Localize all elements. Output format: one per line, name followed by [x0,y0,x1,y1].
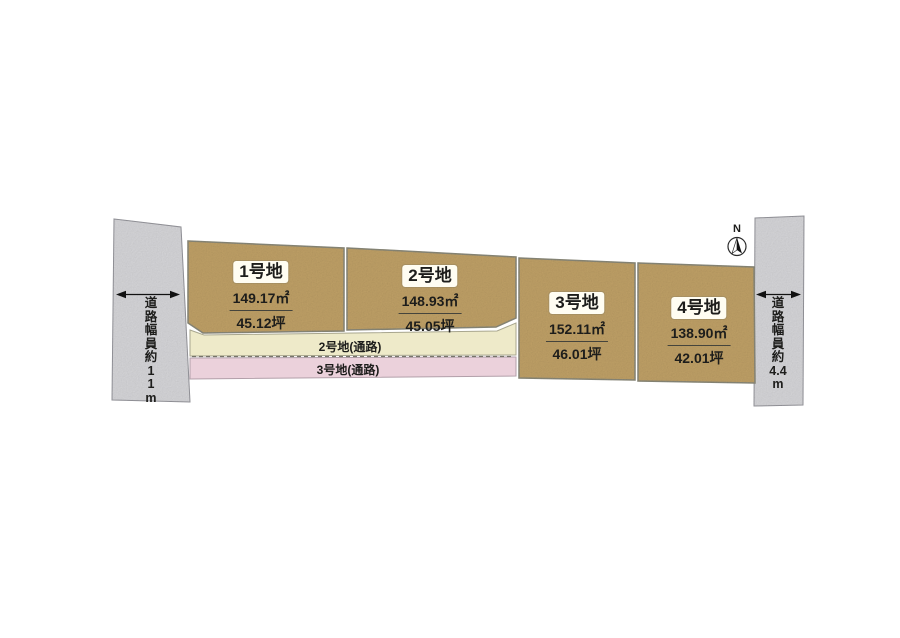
road-right-width-label: 道 路 幅 員 約 4.4 m [769,297,786,392]
north-compass-icon [728,238,746,256]
plot-2-area-tsubo: 45.05坪 [405,316,454,336]
plot-4-area-sqm: 138.90㎡ [668,323,731,346]
road-right-char: m [772,378,783,391]
plot-1-area-tsubo: 45.12坪 [236,313,285,333]
road-left-char: 路 [145,311,158,324]
road-left-char: 約 [145,351,158,364]
compass-north-label: N [733,223,741,235]
road-right-char: 幅 [772,324,785,337]
road-right-char: 約 [772,351,785,364]
road-right-char: 4.4 [769,365,786,378]
plot-1-area-sqm: 149.17㎡ [230,288,293,311]
plot-1-values: 149.17㎡ 45.12坪 [230,288,293,333]
road-left-char: 員 [145,338,158,351]
plot-3-values: 152.11㎡ 46.01坪 [546,319,608,364]
plot-3-area-sqm: 152.11㎡ [546,319,608,342]
plot-1-name-badge: 1号地 [233,261,288,283]
plot-3-name-badge: 3号地 [549,292,604,314]
passage-3-label: 3号地(通路) [317,361,380,378]
plot-2-name-badge: 2号地 [402,265,457,287]
road-right-char: 路 [772,311,785,324]
plot-2-area-sqm: 148.93㎡ [399,291,462,314]
passage-2-label: 2号地(通路) [319,338,382,355]
plot-3-area-tsubo: 46.01坪 [552,344,601,364]
road-left-char: 1 [148,378,155,391]
road-left-width-label: 道 路 幅 員 約 1 1 m [145,297,158,405]
road-right-char: 道 [772,297,785,310]
plot-4-area-tsubo: 42.01坪 [674,348,723,368]
road-left-char: m [145,392,156,405]
road-left-char: 幅 [145,324,158,337]
plot-4-name-badge: 4号地 [671,297,726,319]
road-left-char: 1 [148,365,155,378]
road-right-char: 員 [772,338,785,351]
land-subdivision-diagram: N 1号地 149.17㎡ 45.12坪 2号地 148.93㎡ 45.05坪 … [0,0,900,638]
road-left-char: 道 [145,297,158,310]
plot-2-values: 148.93㎡ 45.05坪 [399,291,462,336]
plot-4-values: 138.90㎡ 42.01坪 [668,323,731,368]
